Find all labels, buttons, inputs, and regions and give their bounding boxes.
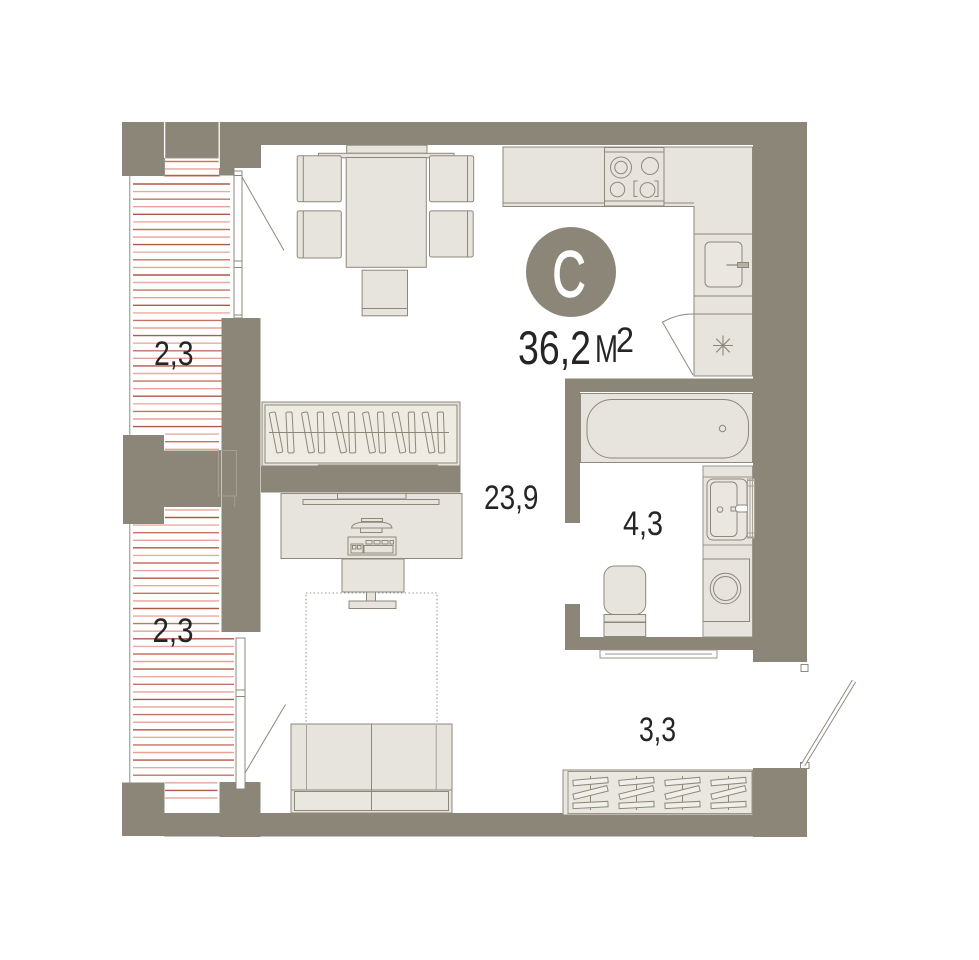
svg-text:23,9: 23,9 [484, 479, 539, 517]
svg-text:2,3: 2,3 [154, 335, 194, 373]
svg-text:3,3: 3,3 [639, 711, 676, 749]
svg-text:2,3: 2,3 [153, 612, 194, 650]
svg-text:2: 2 [616, 321, 634, 360]
svg-text:С: С [553, 238, 586, 311]
svg-text:36,2: 36,2 [518, 321, 591, 374]
svg-text:М: М [595, 328, 618, 371]
svg-text:4,3: 4,3 [623, 505, 663, 543]
